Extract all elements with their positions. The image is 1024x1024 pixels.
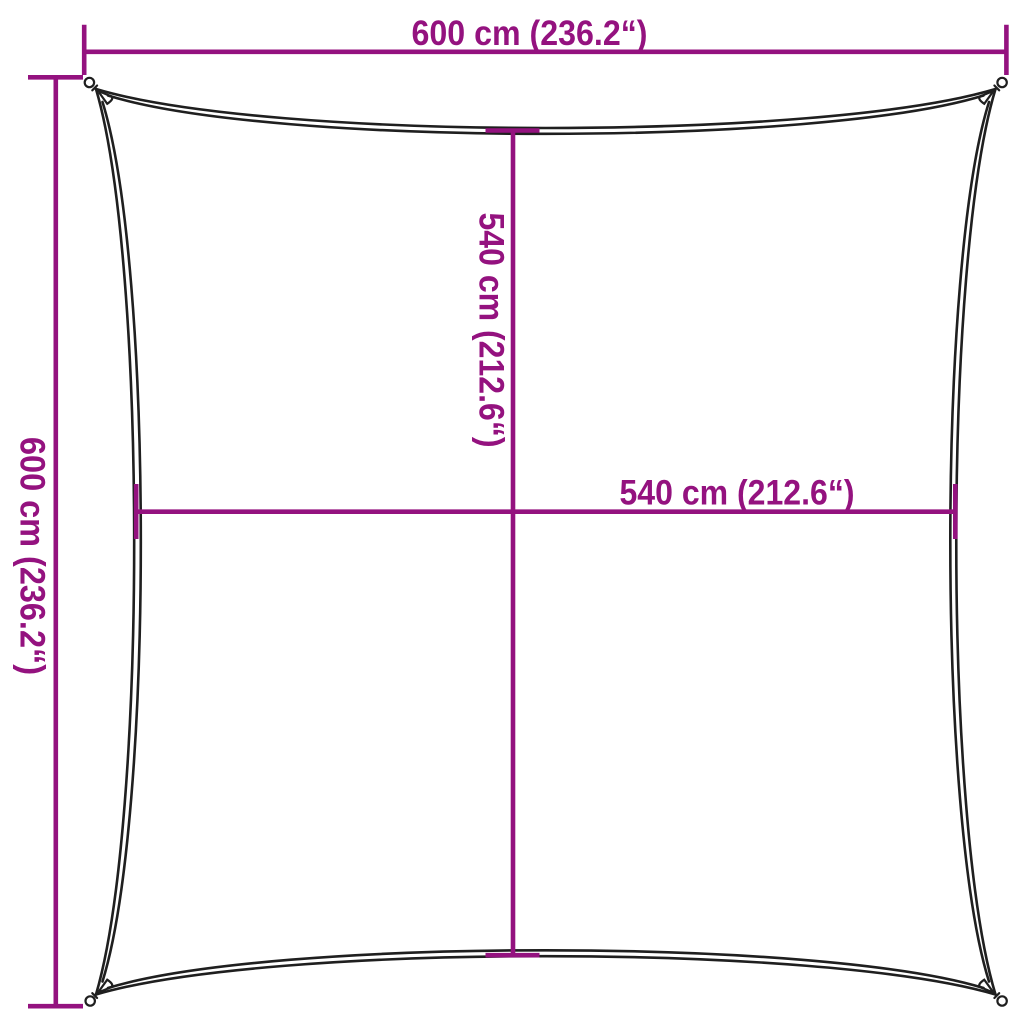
svg-text:540 cm (212.6“): 540 cm (212.6“) <box>620 473 855 512</box>
svg-text:600 cm (236.2“): 600 cm (236.2“) <box>412 14 648 53</box>
svg-text:540 cm (212.6“): 540 cm (212.6“) <box>472 213 511 448</box>
svg-text:600 cm (236.2“): 600 cm (236.2“) <box>13 437 52 675</box>
